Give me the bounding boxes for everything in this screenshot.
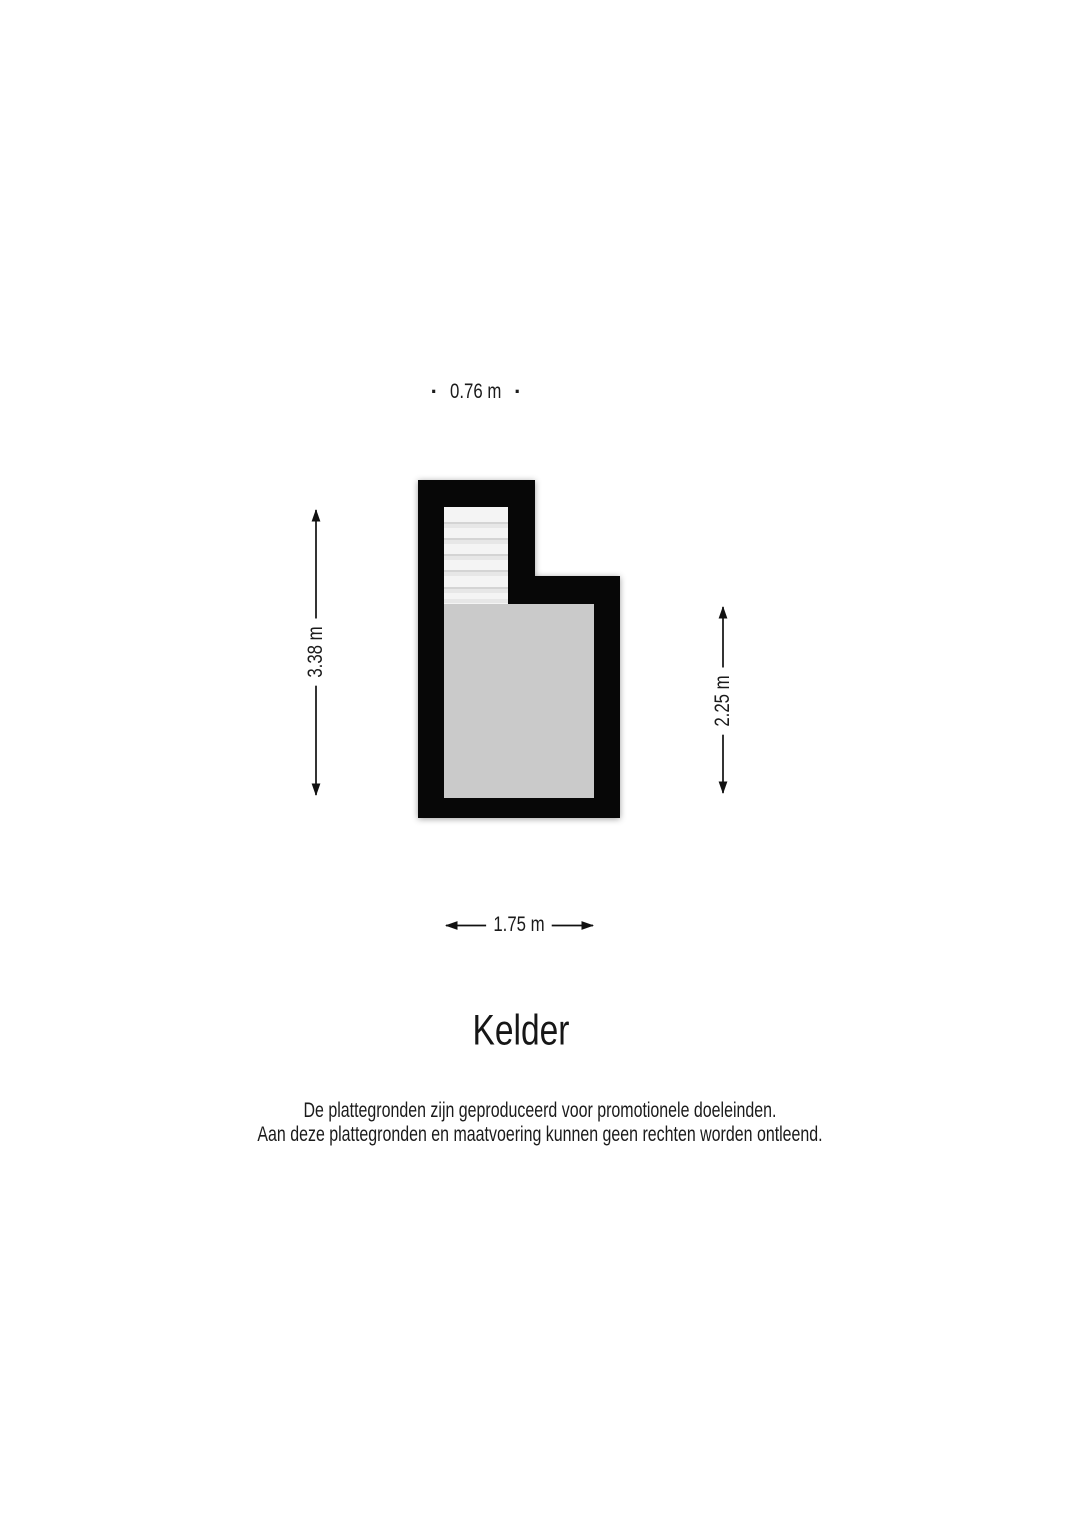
dimension-dot-right: · <box>514 387 521 397</box>
stairs <box>444 507 508 604</box>
disclaimer: De plattegronden zijn geproduceerd voor … <box>130 1099 951 1146</box>
dimension-label-left: 3.38 m <box>301 618 331 685</box>
dimension-label-right: 2.25 m <box>708 667 738 734</box>
floorplan-page: · 0.76 m · 3.38 m 2.25 m 1.75 m Kelder D… <box>0 0 1080 1526</box>
dimension-label-bottom: 1.75 m <box>486 911 552 939</box>
disclaimer-line-2: Aan deze plattegronden en maatvoering ku… <box>130 1123 951 1147</box>
dimension-label-top: · 0.76 m · <box>431 380 522 404</box>
basement-room-floor <box>444 604 594 798</box>
floor-plan-svg <box>0 0 1080 1526</box>
dimension-value-top: 0.76 m <box>450 380 501 404</box>
disclaimer-line-1: De plattegronden zijn geproduceerd voor … <box>130 1099 951 1123</box>
floor-title: Kelder <box>473 1007 570 1056</box>
dimension-dot-left: · <box>431 387 438 397</box>
